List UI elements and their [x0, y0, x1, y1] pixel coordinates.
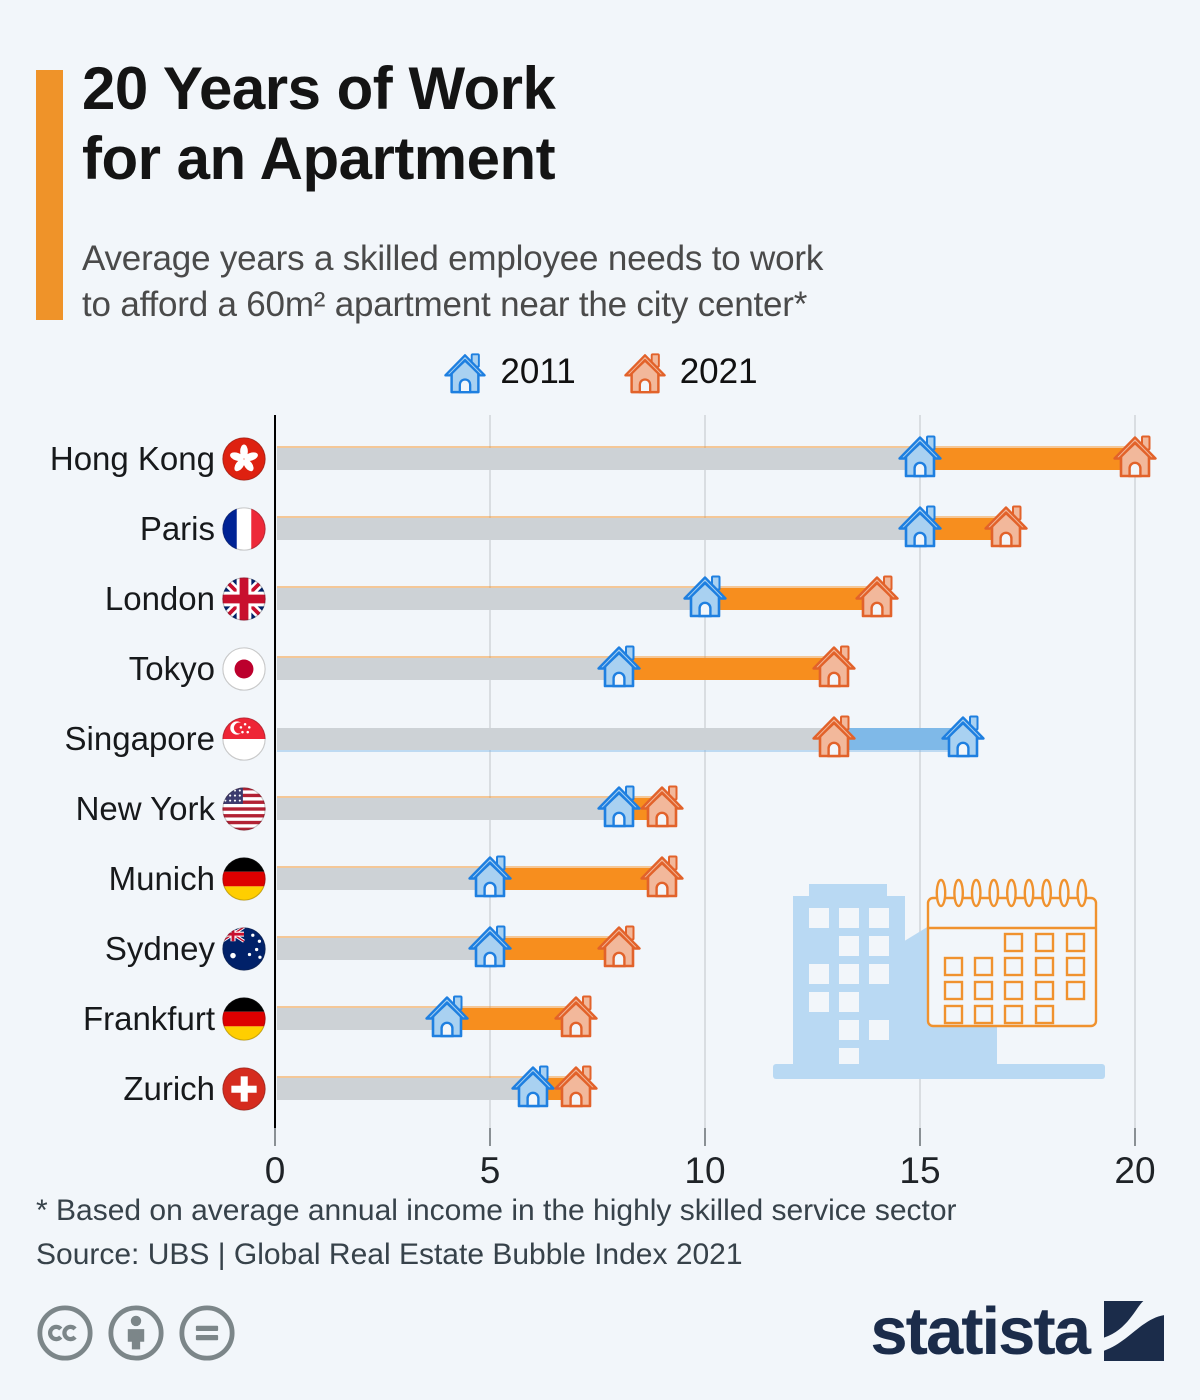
- bar-segment: [705, 588, 877, 610]
- row-label: Tokyo: [0, 646, 266, 692]
- house-2011-icon: [939, 712, 987, 758]
- axis-line: [274, 415, 276, 1128]
- house-2011-icon: [595, 782, 643, 828]
- row-label-text: Frankfurt: [83, 1000, 215, 1038]
- bar-track: [277, 1008, 447, 1030]
- house-2021-icon: [810, 642, 858, 688]
- statista-logo-icon: [1104, 1301, 1164, 1361]
- axis-tick: [704, 1128, 706, 1146]
- bar-track: [277, 1078, 533, 1100]
- house-2021-icon: [810, 712, 858, 758]
- axis-tick: [489, 1128, 491, 1146]
- bar-track: [277, 798, 619, 820]
- flag-japan-icon: [222, 647, 266, 691]
- house-2021-icon: [552, 992, 600, 1038]
- house-2011-icon: [896, 432, 944, 478]
- bar-segment: [619, 658, 834, 680]
- axis-tick: [274, 1128, 276, 1146]
- house-2011-icon: [423, 992, 471, 1038]
- row-label: Munich: [0, 856, 266, 902]
- house-2021-icon: [638, 852, 686, 898]
- row-label: Singapore: [0, 716, 266, 762]
- row-label-text: New York: [76, 790, 215, 828]
- flag-switzerland-icon: [222, 1067, 266, 1111]
- row-label-text: Sydney: [105, 930, 215, 968]
- row-label-text: Singapore: [65, 720, 215, 758]
- bar-track: [277, 588, 705, 610]
- row-label-text: Hong Kong: [50, 440, 215, 478]
- flag-hong-kong-icon: [222, 437, 266, 481]
- dumbbell-chart: 05101520Hong Kong Paris London Tokyo Sin…: [0, 0, 1200, 1400]
- flag-germany-icon: [222, 857, 266, 901]
- flag-usa-icon: [222, 787, 266, 831]
- statista-logo-text: statista: [870, 1298, 1089, 1365]
- house-2011-icon: [466, 852, 514, 898]
- bar-track: [277, 518, 920, 540]
- calendar-icon: [928, 880, 1096, 1026]
- bar-track: [277, 728, 834, 750]
- house-2011-icon: [466, 922, 514, 968]
- bar-track: [277, 658, 619, 680]
- row-label-text: Zurich: [123, 1070, 215, 1108]
- house-2021-icon: [1111, 432, 1159, 478]
- house-2011-icon: [681, 572, 729, 618]
- row-label: Zurich: [0, 1066, 266, 1112]
- flag-germany-icon: [222, 997, 266, 1041]
- axis-tick-label: 15: [880, 1150, 960, 1192]
- row-label: Paris: [0, 506, 266, 552]
- axis-tick-label: 20: [1095, 1150, 1175, 1192]
- axis-tick: [919, 1128, 921, 1146]
- row-label: Frankfurt: [0, 996, 266, 1042]
- house-2021-icon: [638, 782, 686, 828]
- axis-tick-label: 0: [235, 1150, 315, 1192]
- chart-source: Source: UBS | Global Real Estate Bubble …: [36, 1238, 743, 1272]
- bar-segment: [490, 868, 662, 890]
- bar-track: [277, 938, 490, 960]
- bar-track: [277, 868, 490, 890]
- house-2011-icon: [509, 1062, 557, 1108]
- row-label: Sydney: [0, 926, 266, 972]
- row-label-text: London: [105, 580, 215, 618]
- bar-segment: [920, 448, 1135, 470]
- house-2021-icon: [982, 502, 1030, 548]
- house-2011-icon: [595, 642, 643, 688]
- row-label-text: Munich: [109, 860, 215, 898]
- gridline: [1134, 415, 1136, 1128]
- flag-uk-icon: [222, 577, 266, 621]
- flag-singapore-icon: [222, 717, 266, 761]
- buildings-calendar-illustration: [765, 872, 1130, 1100]
- row-label: Hong Kong: [0, 436, 266, 482]
- axis-tick-label: 10: [665, 1150, 745, 1192]
- row-label: London: [0, 576, 266, 622]
- axis-tick-label: 5: [450, 1150, 530, 1192]
- row-label: New York: [0, 786, 266, 832]
- chart-footnote: * Based on average annual income in the …: [36, 1194, 957, 1228]
- house-2021-icon: [595, 922, 643, 968]
- bar-track: [277, 448, 920, 470]
- flag-australia-icon: [222, 927, 266, 971]
- flag-france-icon: [222, 507, 266, 551]
- house-2011-icon: [896, 502, 944, 548]
- row-label-text: Paris: [140, 510, 215, 548]
- axis-tick: [1134, 1128, 1136, 1146]
- house-2021-icon: [552, 1062, 600, 1108]
- house-2021-icon: [853, 572, 901, 618]
- statista-branding: statista: [0, 1296, 1164, 1366]
- row-label-text: Tokyo: [129, 650, 215, 688]
